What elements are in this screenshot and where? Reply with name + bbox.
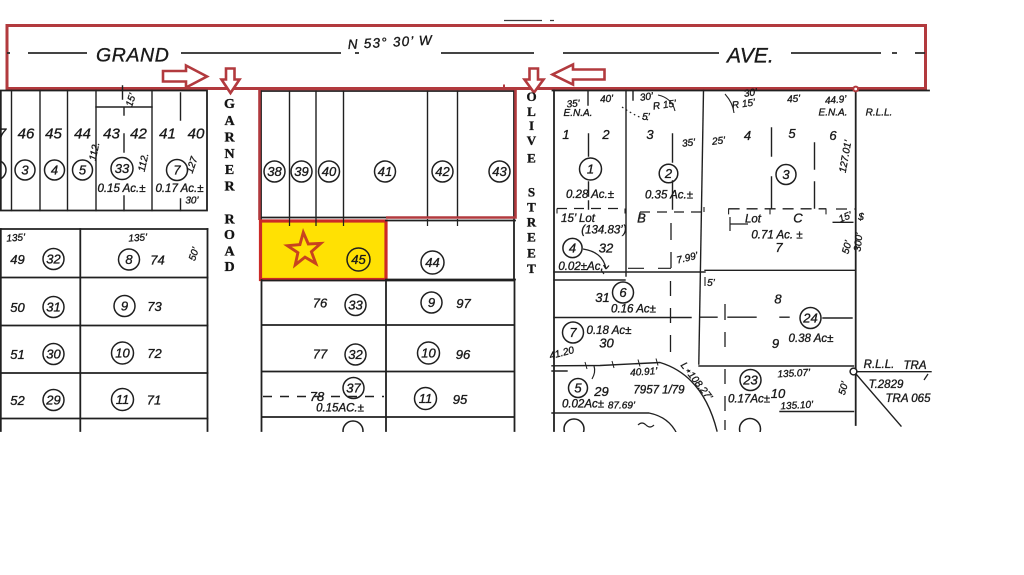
svg-text:40: 40: [188, 126, 205, 143]
svg-text:300’: 300’: [853, 231, 866, 252]
svg-text:45’: 45’: [787, 93, 802, 105]
svg-text:3: 3: [21, 163, 29, 178]
svg-text:8: 8: [774, 292, 782, 307]
svg-text:11: 11: [419, 391, 433, 406]
svg-text:9: 9: [772, 336, 779, 351]
svg-text:30: 30: [599, 336, 614, 351]
svg-text:15’ Lot: 15’ Lot: [561, 213, 596, 225]
svg-text:38: 38: [267, 164, 282, 179]
svg-text:R: R: [224, 213, 235, 228]
svg-text:87.69’: 87.69’: [608, 401, 636, 412]
svg-text:10: 10: [421, 346, 436, 361]
svg-text:96: 96: [456, 347, 471, 362]
svg-text:23: 23: [742, 373, 758, 388]
svg-text:97: 97: [456, 296, 471, 311]
svg-text:Lot: Lot: [745, 214, 762, 226]
svg-text:R: R: [527, 215, 537, 230]
svg-text:40.91’: 40.91’: [630, 366, 659, 379]
svg-text:30: 30: [46, 347, 61, 362]
svg-text:R.L.L.: R.L.L.: [866, 108, 893, 119]
svg-text:41: 41: [159, 126, 176, 143]
svg-text:0.15AC.±: 0.15AC.±: [316, 403, 364, 415]
svg-text:42: 42: [130, 126, 147, 143]
svg-text:E: E: [527, 151, 536, 166]
svg-text:O: O: [224, 228, 235, 243]
svg-text:0.35 Ac.±: 0.35 Ac.±: [645, 190, 693, 202]
svg-text:3: 3: [646, 127, 654, 142]
svg-text:8: 8: [125, 252, 133, 267]
svg-text:T: T: [527, 261, 536, 276]
svg-text:3: 3: [782, 167, 790, 182]
svg-text:30’: 30’: [185, 196, 199, 207]
svg-text:42: 42: [435, 164, 450, 179]
svg-text:GRAND: GRAND: [96, 45, 169, 67]
svg-text:0.17 Ac.±: 0.17 Ac.±: [155, 183, 203, 195]
svg-text:44.9’: 44.9’: [825, 94, 848, 107]
svg-text:32: 32: [46, 252, 61, 267]
svg-text:135.07’: 135.07’: [777, 368, 811, 381]
svg-text:33: 33: [348, 298, 363, 313]
svg-text:O: O: [526, 89, 536, 104]
svg-text:9: 9: [121, 299, 128, 314]
svg-text:72: 72: [147, 346, 162, 361]
svg-text:35’: 35’: [682, 137, 697, 149]
svg-text:R: R: [224, 180, 235, 195]
svg-text:D: D: [224, 260, 234, 275]
svg-text:TRA 065: TRA 065: [886, 393, 932, 405]
svg-text:A: A: [224, 245, 235, 260]
svg-text:135’: 135’: [128, 232, 148, 244]
svg-text:7: 7: [0, 126, 7, 143]
svg-text:7: 7: [775, 240, 783, 255]
svg-text:11: 11: [116, 392, 130, 407]
svg-text:73: 73: [147, 299, 162, 314]
svg-text:4: 4: [51, 163, 58, 178]
svg-text:N: N: [224, 147, 234, 162]
svg-text:C: C: [793, 211, 803, 226]
svg-text:33: 33: [115, 161, 130, 176]
svg-text:AVE.: AVE.: [725, 45, 774, 68]
svg-text:5: 5: [788, 126, 796, 141]
svg-text:44: 44: [425, 255, 439, 270]
svg-text:E.N.A.: E.N.A.: [564, 108, 593, 119]
svg-text:31: 31: [595, 290, 609, 305]
svg-text:71: 71: [147, 393, 161, 408]
svg-text:0.16 Ac±: 0.16 Ac±: [611, 304, 656, 316]
svg-text:0.02±Ac.: 0.02±Ac.: [558, 261, 603, 273]
svg-text:32: 32: [599, 241, 614, 256]
svg-text:10: 10: [771, 386, 786, 401]
svg-text:49: 49: [10, 252, 24, 267]
svg-text:51: 51: [10, 347, 24, 362]
svg-text:5: 5: [79, 163, 87, 178]
svg-text:T: T: [527, 200, 536, 215]
svg-text:E.N.A.: E.N.A.: [819, 108, 848, 119]
svg-text:40: 40: [322, 164, 337, 179]
svg-text:45: 45: [351, 252, 366, 267]
svg-text:I: I: [529, 118, 534, 133]
svg-text:1: 1: [587, 162, 594, 177]
svg-text:5’: 5’: [707, 278, 716, 289]
svg-text:45: 45: [45, 126, 62, 143]
svg-text:135’: 135’: [6, 232, 26, 244]
svg-text:39: 39: [294, 164, 308, 179]
svg-text:0.28 Ac.±: 0.28 Ac.±: [566, 189, 614, 201]
svg-text:76: 76: [313, 296, 328, 311]
svg-text:0.17Ac±: 0.17Ac±: [728, 394, 770, 406]
svg-text:V: V: [527, 133, 537, 148]
svg-text:$: $: [857, 212, 864, 223]
svg-text:0.15 Ac.±: 0.15 Ac.±: [97, 183, 145, 195]
svg-text:24: 24: [802, 311, 817, 326]
svg-text:32: 32: [348, 347, 363, 362]
svg-text:29: 29: [45, 393, 60, 408]
svg-text:10: 10: [115, 346, 130, 361]
svg-text:B: B: [637, 211, 646, 226]
svg-text:R.L.L.: R.L.L.: [864, 359, 895, 371]
svg-text:4: 4: [569, 241, 576, 256]
svg-text:43: 43: [103, 126, 120, 143]
svg-text:5: 5: [574, 381, 582, 396]
svg-text:2: 2: [601, 127, 610, 142]
svg-text:7957 1/79: 7957 1/79: [633, 385, 685, 397]
svg-text:44: 44: [74, 126, 91, 143]
svg-text:95: 95: [453, 392, 468, 407]
svg-text:L: L: [527, 104, 536, 119]
svg-text:7: 7: [569, 325, 577, 340]
svg-text:29: 29: [593, 384, 608, 399]
svg-text:37: 37: [346, 381, 361, 396]
svg-text:41: 41: [378, 164, 392, 179]
svg-text:7: 7: [173, 163, 181, 178]
svg-text:50: 50: [10, 300, 25, 315]
svg-text:6: 6: [619, 285, 627, 300]
svg-text:TRA: TRA: [904, 360, 927, 372]
svg-text:E: E: [527, 246, 536, 261]
svg-text:R: R: [224, 131, 235, 146]
svg-text:52: 52: [10, 393, 25, 408]
svg-text:0.02Ac±: 0.02Ac±: [562, 399, 604, 411]
svg-text:6: 6: [829, 128, 837, 143]
svg-text:31: 31: [46, 300, 60, 315]
svg-text:4: 4: [744, 128, 751, 143]
svg-text:25’: 25’: [711, 135, 727, 148]
svg-text:E: E: [225, 163, 234, 178]
svg-text:77: 77: [313, 347, 328, 362]
svg-text:135.10’: 135.10’: [780, 400, 814, 413]
svg-text:5’: 5’: [642, 112, 651, 123]
svg-text:E: E: [527, 230, 536, 245]
svg-text:1: 1: [562, 127, 569, 142]
svg-text:2: 2: [664, 166, 673, 181]
svg-text:0.38 Ac±: 0.38 Ac±: [789, 333, 834, 345]
svg-text:(134.83’): (134.83’): [581, 225, 627, 237]
svg-text:46: 46: [18, 126, 35, 143]
svg-text:T.2829: T.2829: [869, 379, 904, 391]
svg-text:A: A: [224, 114, 235, 129]
svg-text:9: 9: [428, 295, 435, 310]
svg-text:S: S: [528, 185, 535, 200]
svg-text:43: 43: [492, 164, 507, 179]
svg-text:74: 74: [150, 253, 164, 268]
svg-text:40’: 40’: [600, 93, 615, 105]
svg-text:G: G: [224, 97, 235, 112]
